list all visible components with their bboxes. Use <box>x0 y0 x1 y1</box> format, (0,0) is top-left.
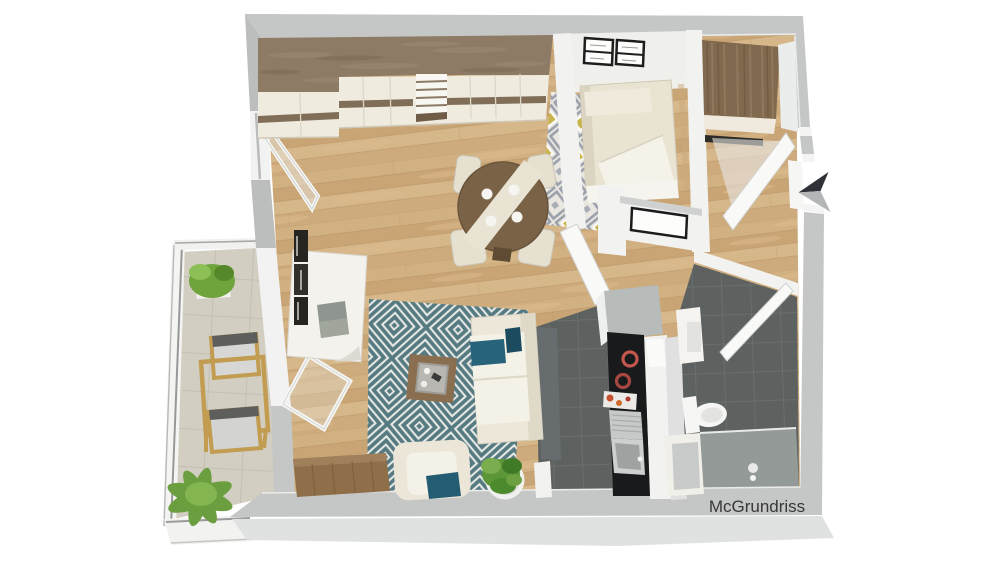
svg-text:McGrundriss: McGrundriss <box>709 497 805 516</box>
